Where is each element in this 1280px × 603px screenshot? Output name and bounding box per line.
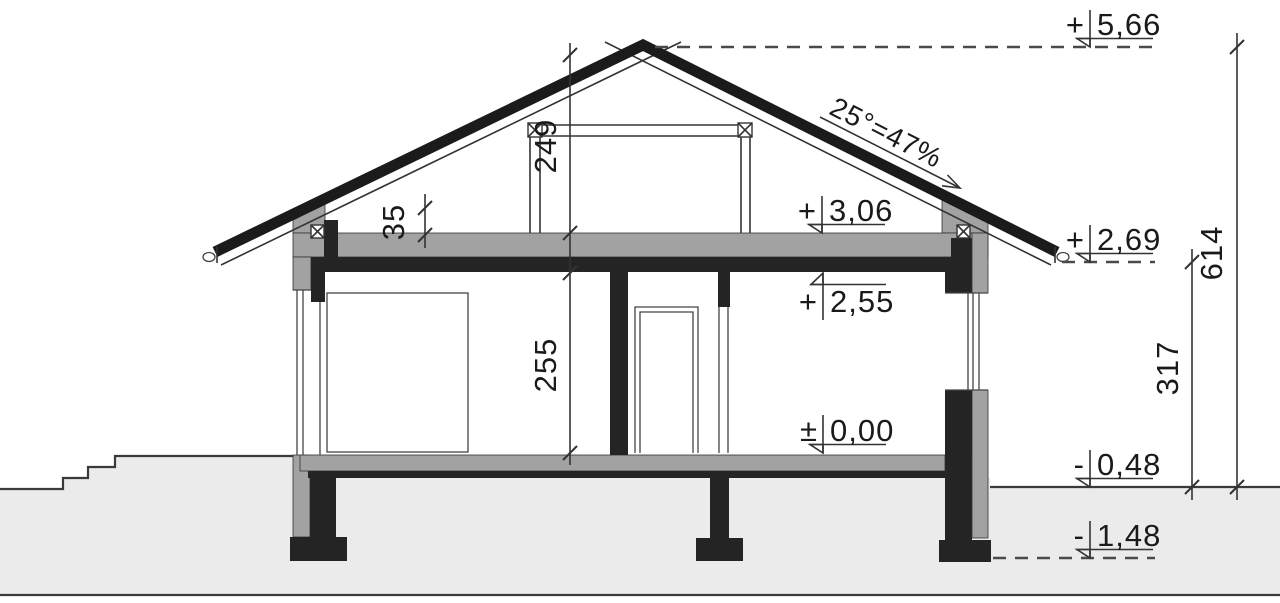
dimension-text-614: 614: [1194, 226, 1229, 281]
foundation-right-wall: [945, 455, 972, 542]
level-value: 2,69: [1097, 222, 1161, 257]
wall-right-outer-upper: [972, 233, 988, 293]
slope-arrowhead: [942, 175, 960, 188]
interior-wall: [610, 272, 628, 455]
interior-door: [635, 307, 698, 453]
ceiling-structure: [318, 257, 968, 272]
level-sign: +: [1066, 222, 1085, 257]
dimension-text-317: 317: [1150, 341, 1185, 396]
level-marker-ground: - 0,48: [1074, 447, 1162, 487]
wall-right-lower: [945, 390, 972, 455]
dimension-ridge-above-ground: 614: [1194, 33, 1244, 500]
dimension-text-35: 35: [376, 204, 411, 240]
level-sign: +: [799, 284, 818, 319]
wall-plate-right: [957, 225, 970, 238]
gutter-left: [203, 253, 215, 262]
level-sign: +: [798, 193, 817, 228]
level-sign: -: [1074, 447, 1085, 482]
level-sign: -: [1074, 518, 1085, 553]
wall-right-upper: [945, 257, 972, 293]
section-drawing: 614 317 249 255 35 25°=47: [0, 0, 1280, 603]
floor-slab: [300, 455, 945, 478]
level-value: 0,48: [1097, 447, 1161, 482]
dimension-text-255: 255: [528, 338, 563, 393]
level-marker-attic-floor: + 3,06: [798, 193, 893, 233]
wall-left-plate-strip: [324, 220, 338, 257]
level-sign: ±: [800, 413, 818, 448]
wall-left-lintel: [311, 257, 325, 302]
level-value: 2,55: [830, 284, 894, 319]
level-value: 1,48: [1097, 518, 1161, 553]
purlin-section-right: [738, 123, 752, 137]
level-marker-floor: ± 0,00: [800, 413, 894, 453]
floor-slab-structure: [308, 471, 945, 478]
rafter-underside-right: [605, 42, 1051, 265]
wall-left-outer-top: [293, 257, 311, 290]
dimension-text-249: 249: [528, 119, 563, 174]
foundation-left-footing: [290, 537, 347, 561]
foundation-right-footing: [939, 540, 991, 562]
level-value: 0,00: [830, 413, 894, 448]
level-marker-ceiling: + 2,55: [799, 273, 894, 320]
level-value: 5,66: [1097, 7, 1161, 42]
level-marker-eaves: + 2,69: [1066, 222, 1161, 262]
back-wall-opening: [327, 293, 468, 452]
level-marker-ridge: + 5,66: [1066, 7, 1161, 47]
foundation-center-footing: [696, 538, 743, 561]
rafter-underside-left: [221, 42, 681, 265]
architectural-section-canvas: 614 317 249 255 35 25°=47: [0, 0, 1280, 603]
wall-right-plate-strip: [951, 238, 972, 260]
level-value: 3,06: [829, 193, 893, 228]
window-left: [293, 290, 320, 455]
interior-opening-lintel: [718, 272, 730, 307]
wall-plate-left: [311, 225, 324, 238]
foundation-left-wall: [310, 478, 336, 537]
wall-right-outer-lower: [972, 390, 988, 538]
floor-screed: [300, 455, 945, 471]
interior-passage: [719, 307, 728, 453]
window-right: [945, 293, 988, 390]
foundation-center-pier: [710, 478, 729, 538]
level-sign: +: [1066, 7, 1085, 42]
